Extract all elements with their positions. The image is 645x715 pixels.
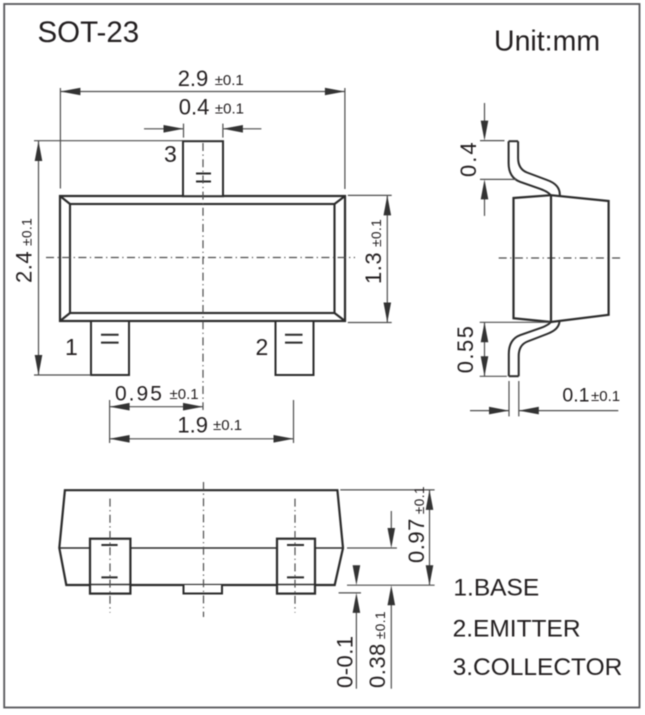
svg-text:1: 1 — [65, 334, 78, 360]
svg-text:0.55: 0.55 — [453, 324, 478, 373]
svg-text:SOT-23: SOT-23 — [38, 16, 140, 49]
svg-text:±0.1: ±0.1 — [215, 100, 244, 117]
svg-text:1.9: 1.9 — [177, 412, 208, 437]
svg-text:0-0.1: 0-0.1 — [333, 635, 358, 688]
svg-text:3.COLLECTOR: 3.COLLECTOR — [453, 654, 623, 681]
svg-text:0.1: 0.1 — [562, 385, 589, 407]
svg-text:±0.1: ±0.1 — [591, 388, 620, 405]
svg-text:0.95: 0.95 — [115, 382, 164, 405]
svg-text:3: 3 — [164, 141, 177, 167]
svg-text:Unit:mm: Unit:mm — [494, 26, 600, 58]
svg-text:2: 2 — [256, 334, 269, 360]
svg-text:±0.1: ±0.1 — [213, 417, 242, 434]
svg-text:0.4: 0.4 — [456, 140, 481, 177]
svg-text:2.9: 2.9 — [178, 66, 209, 91]
svg-text:1.BASE: 1.BASE — [453, 575, 539, 602]
svg-text:±0.1: ±0.1 — [215, 72, 244, 89]
svg-text:0.4: 0.4 — [179, 94, 210, 119]
svg-text:±0.1: ±0.1 — [170, 386, 199, 403]
svg-text:2.EMITTER: 2.EMITTER — [453, 616, 581, 643]
